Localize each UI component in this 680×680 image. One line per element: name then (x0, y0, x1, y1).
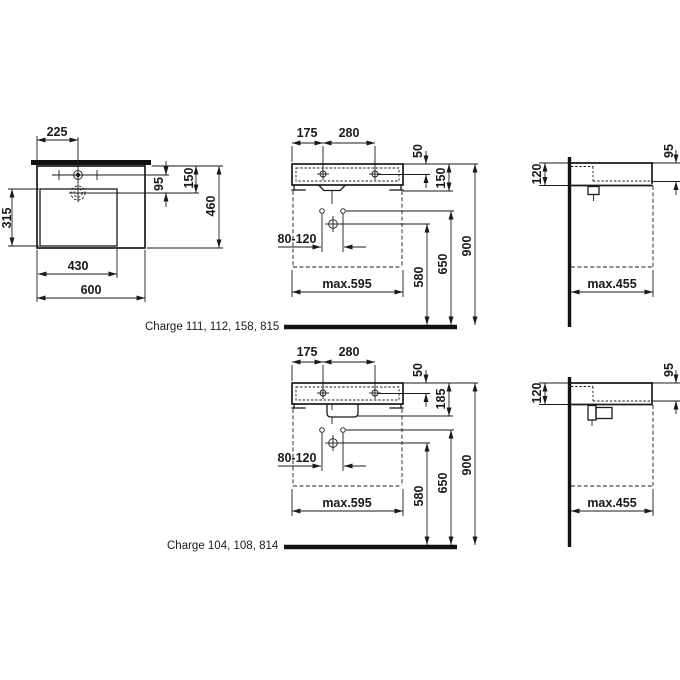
drain-outlet (319, 186, 345, 191)
dim-label-plan-225: 225 (47, 125, 68, 139)
dim-label-sa-max455: max.455 (587, 277, 636, 291)
dim-label-plan-430: 430 (68, 259, 89, 273)
dim-label-plan-150: 150 (182, 168, 196, 189)
dim-label-fb-50: 50 (411, 363, 425, 377)
dim-label-sb-120: 120 (530, 383, 544, 404)
dim-label-fb-175: 175 (297, 345, 318, 359)
trap-outlet (588, 406, 596, 421)
dim-label-sb-max455: max.455 (587, 496, 636, 510)
dim-label-plan-600: 600 (81, 283, 102, 297)
dim-label-fb-280: 280 (339, 345, 360, 359)
fixing-hole-icon (320, 428, 346, 433)
dim-label-fb-max595: max.595 (322, 496, 371, 510)
back-rim-bar (31, 160, 151, 165)
dim-label-plan-95: 95 (152, 177, 166, 191)
dim-label-fa-max595: max.595 (322, 277, 371, 291)
dim-label-fa-150: 150 (434, 168, 448, 189)
dim-label-fb-900: 900 (460, 455, 474, 476)
dim-label-plan-315: 315 (0, 208, 14, 229)
front-view-variant-b: 175 280 80-120 max.595 (278, 345, 478, 547)
fixing-hole-icon (320, 209, 346, 214)
dim-label-fa-280: 280 (339, 126, 360, 140)
dim-label-sa-95: 95 (662, 144, 676, 158)
caption-variant-a: Charge 111, 112, 158, 815 (145, 321, 279, 333)
dim-label-fb-80-120: 80-120 (278, 451, 317, 465)
dim-label-fa-175: 175 (297, 126, 318, 140)
technical-drawing-sheet: 225 315 430 600 95 150 460 (0, 0, 680, 680)
faucet-hole-icon (317, 387, 381, 399)
trap-body (596, 408, 612, 419)
plan-view: 225 315 430 600 95 150 460 (0, 125, 223, 302)
front-view-variant-a: 175 280 80-120 max.595 (278, 126, 478, 327)
drain-outlet (588, 187, 599, 195)
dim-label-fa-50: 50 (411, 144, 425, 158)
dim-label-fa-580: 580 (412, 267, 426, 288)
dim-label-fb-650: 650 (436, 473, 450, 494)
dim-label-fb-580: 580 (412, 486, 426, 507)
side-view-variant-a: 120 95 max.455 (530, 144, 680, 327)
dim-label-fb-185: 185 (434, 389, 448, 410)
faucet-hole-icon (317, 168, 381, 180)
caption-variant-b: Charge 104, 108, 814 (167, 540, 279, 552)
side-view-variant-b: 120 95 max.455 (530, 363, 680, 547)
dim-label-fa-80-120: 80-120 (278, 232, 317, 246)
dim-label-sb-95: 95 (662, 363, 676, 377)
washbasin-dimension-drawing: 225 315 430 600 95 150 460 (0, 0, 680, 680)
dim-label-plan-460: 460 (204, 196, 218, 217)
dim-label-fa-900: 900 (460, 236, 474, 257)
dim-label-fa-650: 650 (436, 254, 450, 275)
basin-outline (37, 166, 145, 248)
dim-label-sa-120: 120 (530, 164, 544, 185)
